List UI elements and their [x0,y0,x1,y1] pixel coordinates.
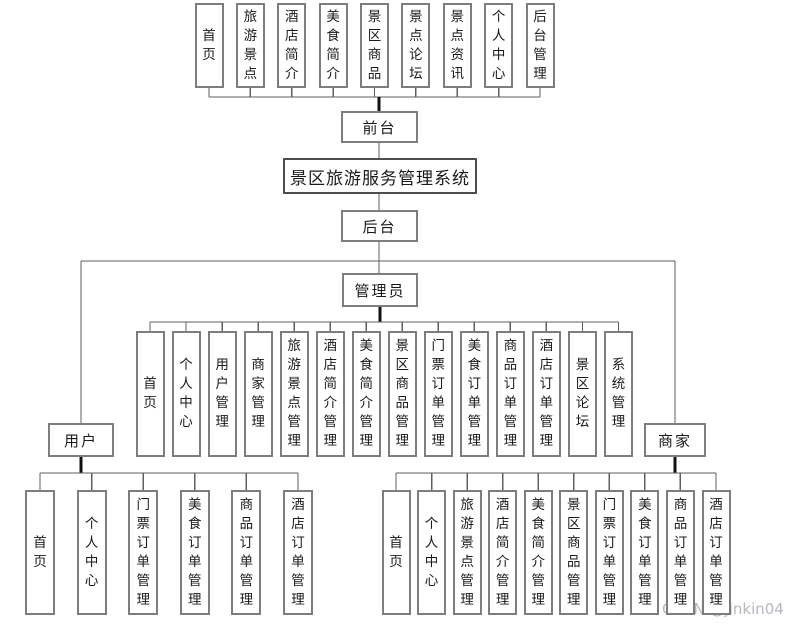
vertical-char: 游 [460,515,474,534]
vertical-char: 订 [432,375,446,394]
vertical-char: 食 [468,356,482,375]
vertical-char: 页 [202,46,216,65]
user-item-home: 首页 [25,490,55,615]
vertical-char: 人 [492,27,506,46]
vertical-char: 点 [460,553,474,572]
vertical-char: 资 [451,46,465,65]
vertical-char: 单 [540,394,554,413]
vertical-char: 管 [432,413,446,432]
front-item-backend-mgmt: 后台管理 [526,3,555,88]
vertical-char: 订 [603,534,617,553]
vertical-char: 游 [244,27,258,46]
vertical-char: 酒 [496,496,510,515]
vertical-char: 店 [540,356,554,375]
vertical-char: 美 [326,8,340,27]
vertical-char: 点 [409,27,423,46]
vertical-char: 户 [215,375,229,394]
vertical-char: 讯 [451,65,465,84]
vertical-char: 台 [533,27,547,46]
vertical-char: 理 [674,591,688,610]
vertical-char: 商 [396,375,410,394]
vertical-char: 美 [638,496,652,515]
vertical-char: 中 [85,553,99,572]
vertical-char: 管 [136,572,150,591]
merchant-item-ticket-order-mgmt: 门票订单管理 [595,490,624,615]
vertical-char: 品 [368,65,382,84]
vertical-char: 景 [460,534,474,553]
vertical-char: 简 [323,375,337,394]
vertical-char: 论 [576,394,590,413]
vertical-char: 理 [496,591,510,610]
vertical-char: 品 [567,553,581,572]
vertical-char: 票 [603,515,617,534]
vertical-char: 理 [396,432,410,451]
front-item-scenic-goods: 景区商品 [360,3,389,88]
user-item-personal-center: 个人中心 [77,490,107,615]
vertical-char: 首 [143,375,157,394]
vertical-char: 旅 [287,337,301,356]
vertical-char: 人 [425,534,439,553]
vertical-char: 订 [638,534,652,553]
vertical-char: 商 [674,496,688,515]
vertical-char: 系 [612,356,626,375]
merchant-item-goods-order-mgmt: 商品订单管理 [666,490,695,615]
vertical-char: 管 [567,572,581,591]
vertical-char: 中 [492,46,506,65]
vertical-char: 管 [359,413,373,432]
user-item-goods-order-mgmt: 商品订单管理 [231,490,261,615]
vertical-char: 理 [323,432,337,451]
vertical-char: 景 [244,46,258,65]
vertical-char: 心 [85,572,99,591]
vertical-char: 用 [215,356,229,375]
admin-item-scenic-goods-mgmt: 景区商品管理 [388,331,417,457]
admin-item-hotel-order-mgmt: 酒店订单管理 [532,331,561,457]
merchant-item-home: 首页 [382,490,411,615]
vertical-char: 介 [323,394,337,413]
vertical-char: 理 [432,432,446,451]
vertical-char: 商 [504,337,518,356]
vertical-char: 介 [496,553,510,572]
front-item-personal-center: 个人中心 [484,3,513,88]
vertical-char: 票 [136,515,150,534]
vertical-char: 订 [540,375,554,394]
vertical-char: 理 [460,591,474,610]
vertical-char: 个 [179,356,193,375]
system-title: 景区旅游服务管理系统 [283,158,477,194]
vertical-char: 店 [709,515,723,534]
vertical-char: 单 [709,553,723,572]
vertical-char: 理 [291,591,305,610]
admin-item-food-intro-mgmt: 美食简介管理 [352,331,381,457]
vertical-char: 首 [33,534,47,553]
front-item-tourist-attractions: 旅游景点 [236,3,265,88]
vertical-char: 理 [533,65,547,84]
vertical-char: 页 [33,553,47,572]
vertical-char: 页 [143,394,157,413]
vertical-char: 理 [468,432,482,451]
merchant-node: 商家 [644,423,706,457]
admin-item-personal-center: 个人中心 [172,331,201,457]
vertical-char: 管 [240,572,254,591]
vertical-char: 单 [504,394,518,413]
vertical-char: 理 [709,591,723,610]
vertical-char: 食 [326,27,340,46]
vertical-char: 坛 [576,413,590,432]
vertical-char: 单 [432,394,446,413]
vertical-char: 管 [674,572,688,591]
vertical-char: 订 [468,375,482,394]
vertical-char: 理 [188,591,202,610]
user-item-food-order-mgmt: 美食订单管理 [180,490,210,615]
vertical-char: 门 [432,337,446,356]
vertical-char: 管 [460,572,474,591]
org-chart: 首页旅游景点酒店简介美食简介景区商品景点论坛景点资讯个人中心后台管理前台景区旅游… [0,0,787,630]
vertical-char: 管 [540,413,554,432]
front-node: 前台 [341,111,418,143]
vertical-char: 统 [612,375,626,394]
front-item-hotel-intro: 酒店简介 [277,3,306,88]
vertical-char: 点 [287,394,301,413]
vertical-char: 美 [531,496,545,515]
vertical-char: 管 [504,413,518,432]
vertical-char: 管 [531,572,545,591]
vertical-char: 景 [451,8,465,27]
vertical-char: 单 [468,394,482,413]
vertical-char: 票 [432,356,446,375]
vertical-char: 商 [240,496,254,515]
vertical-char: 品 [240,515,254,534]
vertical-char: 酒 [540,337,554,356]
vertical-char: 单 [188,553,202,572]
back-node: 后台 [341,210,418,242]
vertical-char: 理 [251,413,265,432]
merchant-item-food-order-mgmt: 美食订单管理 [630,490,659,615]
vertical-char: 单 [240,553,254,572]
vertical-char: 旅 [244,8,258,27]
vertical-char: 区 [576,375,590,394]
vertical-char: 理 [240,591,254,610]
vertical-char: 管 [533,46,547,65]
admin-item-scenic-forum: 景区论坛 [568,331,597,457]
vertical-char: 单 [603,553,617,572]
vertical-char: 区 [567,515,581,534]
vertical-char: 中 [179,394,193,413]
vertical-char: 管 [291,572,305,591]
vertical-char: 管 [215,394,229,413]
front-item-attraction-forum: 景点论坛 [401,3,430,88]
front-item-home: 首页 [195,3,224,88]
vertical-char: 酒 [285,8,299,27]
front-item-attraction-news: 景点资讯 [443,3,472,88]
vertical-char: 管 [468,413,482,432]
vertical-char: 管 [323,413,337,432]
vertical-char: 美 [468,337,482,356]
vertical-char: 单 [136,553,150,572]
vertical-char: 中 [425,553,439,572]
vertical-char: 管 [638,572,652,591]
vertical-char: 理 [567,591,581,610]
vertical-char: 游 [287,356,301,375]
vertical-char: 理 [136,591,150,610]
vertical-char: 区 [368,27,382,46]
admin-item-merchant-mgmt: 商家管理 [244,331,273,457]
vertical-char: 旅 [460,496,474,515]
vertical-char: 订 [291,534,305,553]
vertical-char: 食 [638,515,652,534]
merchant-item-food-intro-mgmt: 美食简介管理 [524,490,553,615]
vertical-char: 理 [540,432,554,451]
vertical-char: 介 [285,65,299,84]
vertical-char: 美 [359,337,373,356]
vertical-char: 人 [85,534,99,553]
vertical-char: 景 [567,496,581,515]
vertical-char: 品 [674,515,688,534]
vertical-char: 介 [326,65,340,84]
merchant-item-attraction-mgmt: 旅游景点管理 [453,490,482,615]
merchant-item-hotel-intro-mgmt: 酒店简介管理 [488,490,517,615]
vertical-char: 简 [359,375,373,394]
vertical-char: 管 [287,413,301,432]
merchant-item-scenic-goods-mgmt: 景区商品管理 [559,490,588,615]
vertical-char: 品 [396,394,410,413]
vertical-char: 订 [674,534,688,553]
vertical-char: 订 [709,534,723,553]
vertical-char: 简 [531,534,545,553]
vertical-char: 理 [531,591,545,610]
vertical-char: 商 [368,46,382,65]
vertical-char: 理 [287,432,301,451]
vertical-char: 首 [389,534,403,553]
vertical-char: 介 [531,553,545,572]
vertical-char: 订 [240,534,254,553]
vertical-char: 页 [389,553,403,572]
admin-item-food-order-mgmt: 美食订单管理 [460,331,489,457]
vertical-char: 管 [188,572,202,591]
vertical-char: 简 [326,46,340,65]
vertical-char: 理 [215,413,229,432]
user-item-ticket-order-mgmt: 门票订单管理 [128,490,158,615]
vertical-char: 酒 [709,496,723,515]
vertical-char: 订 [136,534,150,553]
vertical-char: 食 [531,515,545,534]
vertical-char: 理 [612,413,626,432]
admin-item-goods-order-mgmt: 商品订单管理 [496,331,525,457]
admin-item-system-mgmt: 系统管理 [604,331,633,457]
front-item-food-intro: 美食简介 [319,3,348,88]
vertical-char: 个 [492,8,506,27]
vertical-char: 简 [285,46,299,65]
vertical-char: 心 [425,572,439,591]
vertical-char: 介 [359,394,373,413]
vertical-char: 理 [504,432,518,451]
vertical-char: 管 [251,394,265,413]
vertical-char: 管 [603,572,617,591]
merchant-item-hotel-order-mgmt: 酒店订单管理 [702,490,731,615]
vertical-char: 订 [188,534,202,553]
vertical-char: 管 [396,413,410,432]
vertical-char: 美 [188,496,202,515]
vertical-char: 单 [638,553,652,572]
vertical-char: 景 [396,337,410,356]
vertical-char: 个 [85,515,99,534]
vertical-char: 家 [251,375,265,394]
vertical-char: 店 [496,515,510,534]
vertical-char: 店 [285,27,299,46]
vertical-char: 景 [287,375,301,394]
vertical-char: 食 [359,356,373,375]
vertical-char: 品 [504,356,518,375]
vertical-char: 人 [179,375,193,394]
vertical-char: 酒 [323,337,337,356]
vertical-char: 点 [244,65,258,84]
merchant-item-personal-center: 个人中心 [417,490,446,615]
vertical-char: 首 [202,27,216,46]
vertical-char: 景 [368,8,382,27]
vertical-char: 商 [251,356,265,375]
admin-item-attraction-mgmt: 旅游景点管理 [280,331,309,457]
vertical-char: 门 [603,496,617,515]
vertical-char: 后 [533,8,547,27]
vertical-char: 订 [504,375,518,394]
vertical-char: 区 [396,356,410,375]
admin-node: 管理员 [342,273,418,307]
vertical-char: 理 [638,591,652,610]
vertical-char: 简 [496,534,510,553]
vertical-char: 管 [612,394,626,413]
vertical-char: 管 [709,572,723,591]
vertical-char: 商 [567,534,581,553]
admin-item-home: 首页 [136,331,165,457]
vertical-char: 店 [291,515,305,534]
admin-item-hotel-intro-mgmt: 酒店简介管理 [316,331,345,457]
vertical-char: 景 [576,356,590,375]
vertical-char: 心 [179,413,193,432]
vertical-char: 个 [425,515,439,534]
admin-item-user-mgmt: 用户管理 [208,331,237,457]
vertical-char: 点 [451,27,465,46]
vertical-char: 论 [409,46,423,65]
vertical-char: 理 [359,432,373,451]
vertical-char: 店 [323,356,337,375]
vertical-char: 食 [188,515,202,534]
user-item-hotel-order-mgmt: 酒店订单管理 [283,490,313,615]
vertical-char: 坛 [409,65,423,84]
admin-item-ticket-order-mgmt: 门票订单管理 [424,331,453,457]
vertical-char: 门 [136,496,150,515]
vertical-char: 景 [409,8,423,27]
vertical-char: 管 [496,572,510,591]
vertical-char: 单 [291,553,305,572]
vertical-char: 酒 [291,496,305,515]
vertical-char: 心 [492,65,506,84]
vertical-char: 单 [674,553,688,572]
user-node: 用户 [48,423,114,457]
vertical-char: 理 [603,591,617,610]
